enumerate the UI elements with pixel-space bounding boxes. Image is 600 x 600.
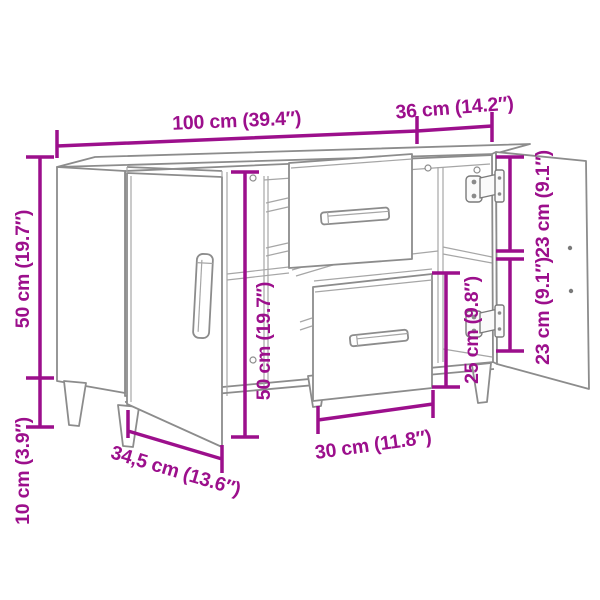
left-door-open — [127, 167, 222, 447]
leg-front-left — [64, 381, 86, 426]
left-door-handle — [193, 254, 213, 339]
dim-label-interior-height: 50 cm (19.7″) — [253, 282, 275, 400]
cabinet-left-panel — [57, 167, 125, 393]
upper-drawer — [289, 154, 412, 276]
dim-label-top-width: 100 cm (39.4″) — [172, 107, 302, 134]
dim-label-top-depth: 36 cm (14.2″) — [395, 92, 515, 123]
dim-label-drawer-width: 30 cm (11.8″) — [314, 426, 433, 464]
dim-label-upper-compartment: 23 cm (9.1″) — [532, 150, 554, 258]
dim-label-leg-height: 10 cm (3.9″) — [12, 417, 34, 525]
dim-label-lower-compartment: 23 cm (9.1″) — [532, 257, 554, 365]
dim-label-drawer-front-height: 25 cm (9.8″) — [461, 276, 483, 384]
dimension-diagram: 100 cm (39.4″) 36 cm (14.2″) 50 cm (19.7… — [0, 0, 600, 600]
lower-drawer — [313, 269, 432, 401]
sideboard-diagram-svg: 100 cm (39.4″) 36 cm (14.2″) 50 cm (19.7… — [0, 0, 600, 600]
dim-label-body-height: 50 cm (19.7″) — [12, 210, 34, 328]
